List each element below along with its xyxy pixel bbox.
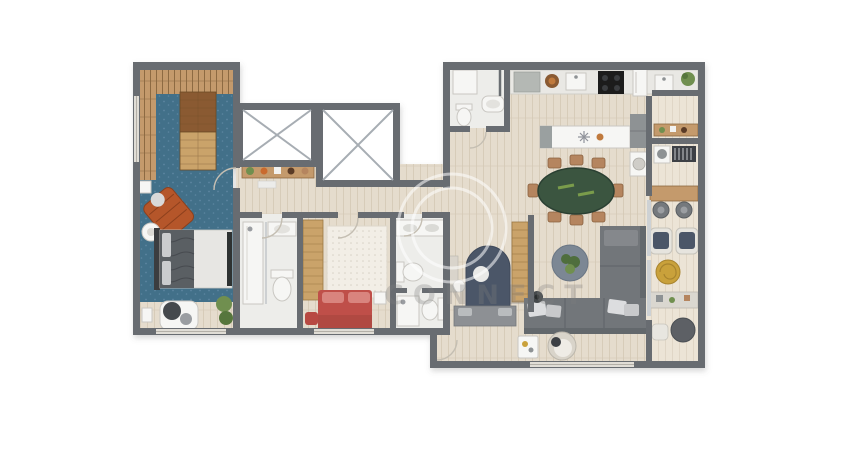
round-side-table-top	[147, 228, 155, 236]
shower-tray	[453, 70, 477, 94]
console-decor	[684, 295, 690, 301]
shelf-box	[670, 126, 676, 132]
round-coffee-table	[671, 318, 695, 342]
decor-box	[274, 167, 281, 174]
shelf-plant	[659, 127, 665, 133]
toilet-bowl	[457, 108, 471, 126]
pillow	[607, 299, 627, 315]
foot-bench	[227, 232, 232, 286]
sofa-back	[640, 226, 646, 306]
table-decor	[522, 341, 528, 347]
decor-bowl	[261, 168, 268, 175]
plant	[682, 73, 688, 79]
burner	[602, 85, 608, 91]
decor-vase	[288, 168, 295, 175]
bar-counter	[650, 186, 698, 201]
sink-basin	[486, 100, 500, 109]
island-end-panel	[540, 126, 552, 148]
pillow	[162, 233, 171, 257]
cooktop	[598, 71, 624, 94]
armchair-cushion	[163, 302, 181, 320]
shower-drain	[248, 227, 253, 232]
sliding-door	[647, 260, 651, 316]
plant	[219, 311, 233, 325]
deck-left	[140, 94, 156, 180]
wall-unit	[142, 308, 152, 322]
armchair-cushion	[679, 232, 695, 249]
armchair-throw	[551, 337, 561, 347]
pillow	[322, 292, 344, 303]
deck-top	[140, 66, 233, 94]
table-decor	[529, 348, 534, 353]
ac-vent	[672, 146, 696, 162]
bar-stool-seat	[681, 207, 688, 214]
watermark-text: CONNECT	[384, 280, 592, 311]
fridge	[633, 69, 647, 96]
dining-chair	[548, 158, 561, 168]
side-table	[518, 336, 538, 358]
dining-chair	[570, 215, 583, 225]
bed-headboard	[154, 228, 160, 290]
console-decor	[656, 295, 663, 302]
shower	[243, 222, 263, 304]
dining-chair	[592, 212, 605, 222]
armchair-ottoman	[180, 313, 192, 325]
prep-cabinet	[514, 72, 540, 92]
burner	[614, 75, 620, 81]
balcony-chair	[652, 324, 668, 340]
armchair-cushion	[653, 232, 669, 249]
bar-stool-seat	[658, 207, 665, 214]
shelf-vase	[681, 127, 687, 133]
faucet	[662, 77, 666, 81]
fruit-bowl-inner	[549, 78, 556, 85]
chaise-cushion	[604, 230, 638, 246]
dining-chair	[548, 212, 561, 222]
plant	[216, 296, 232, 312]
dining-chair	[592, 158, 605, 168]
sink-basin	[403, 224, 417, 232]
pillow	[162, 261, 171, 285]
faucet	[574, 75, 578, 79]
plan-root	[133, 62, 705, 368]
side-table	[139, 181, 151, 193]
pillow	[624, 304, 639, 316]
burner	[614, 85, 620, 91]
floorplan-image: CONNECT	[0, 0, 850, 450]
sink-basin	[425, 224, 439, 232]
laundry-basin	[633, 158, 645, 170]
sliding-door	[647, 200, 651, 256]
sofa-back	[524, 328, 646, 334]
floorplan-svg: CONNECT	[0, 0, 850, 450]
toilet-bowl	[273, 277, 291, 301]
pillow	[348, 292, 370, 303]
decor-plant	[246, 167, 254, 175]
burner	[602, 75, 608, 81]
stool	[305, 312, 318, 325]
dining-chair	[570, 155, 583, 165]
oval-dining-table	[538, 168, 614, 214]
rug-plant	[565, 264, 575, 274]
washer-door	[657, 149, 667, 159]
bench	[258, 181, 276, 188]
console-decor	[669, 297, 675, 303]
dining-chair	[528, 184, 538, 197]
area-rug	[327, 226, 387, 298]
island-bowl	[597, 134, 604, 141]
decor-basket	[302, 168, 309, 175]
